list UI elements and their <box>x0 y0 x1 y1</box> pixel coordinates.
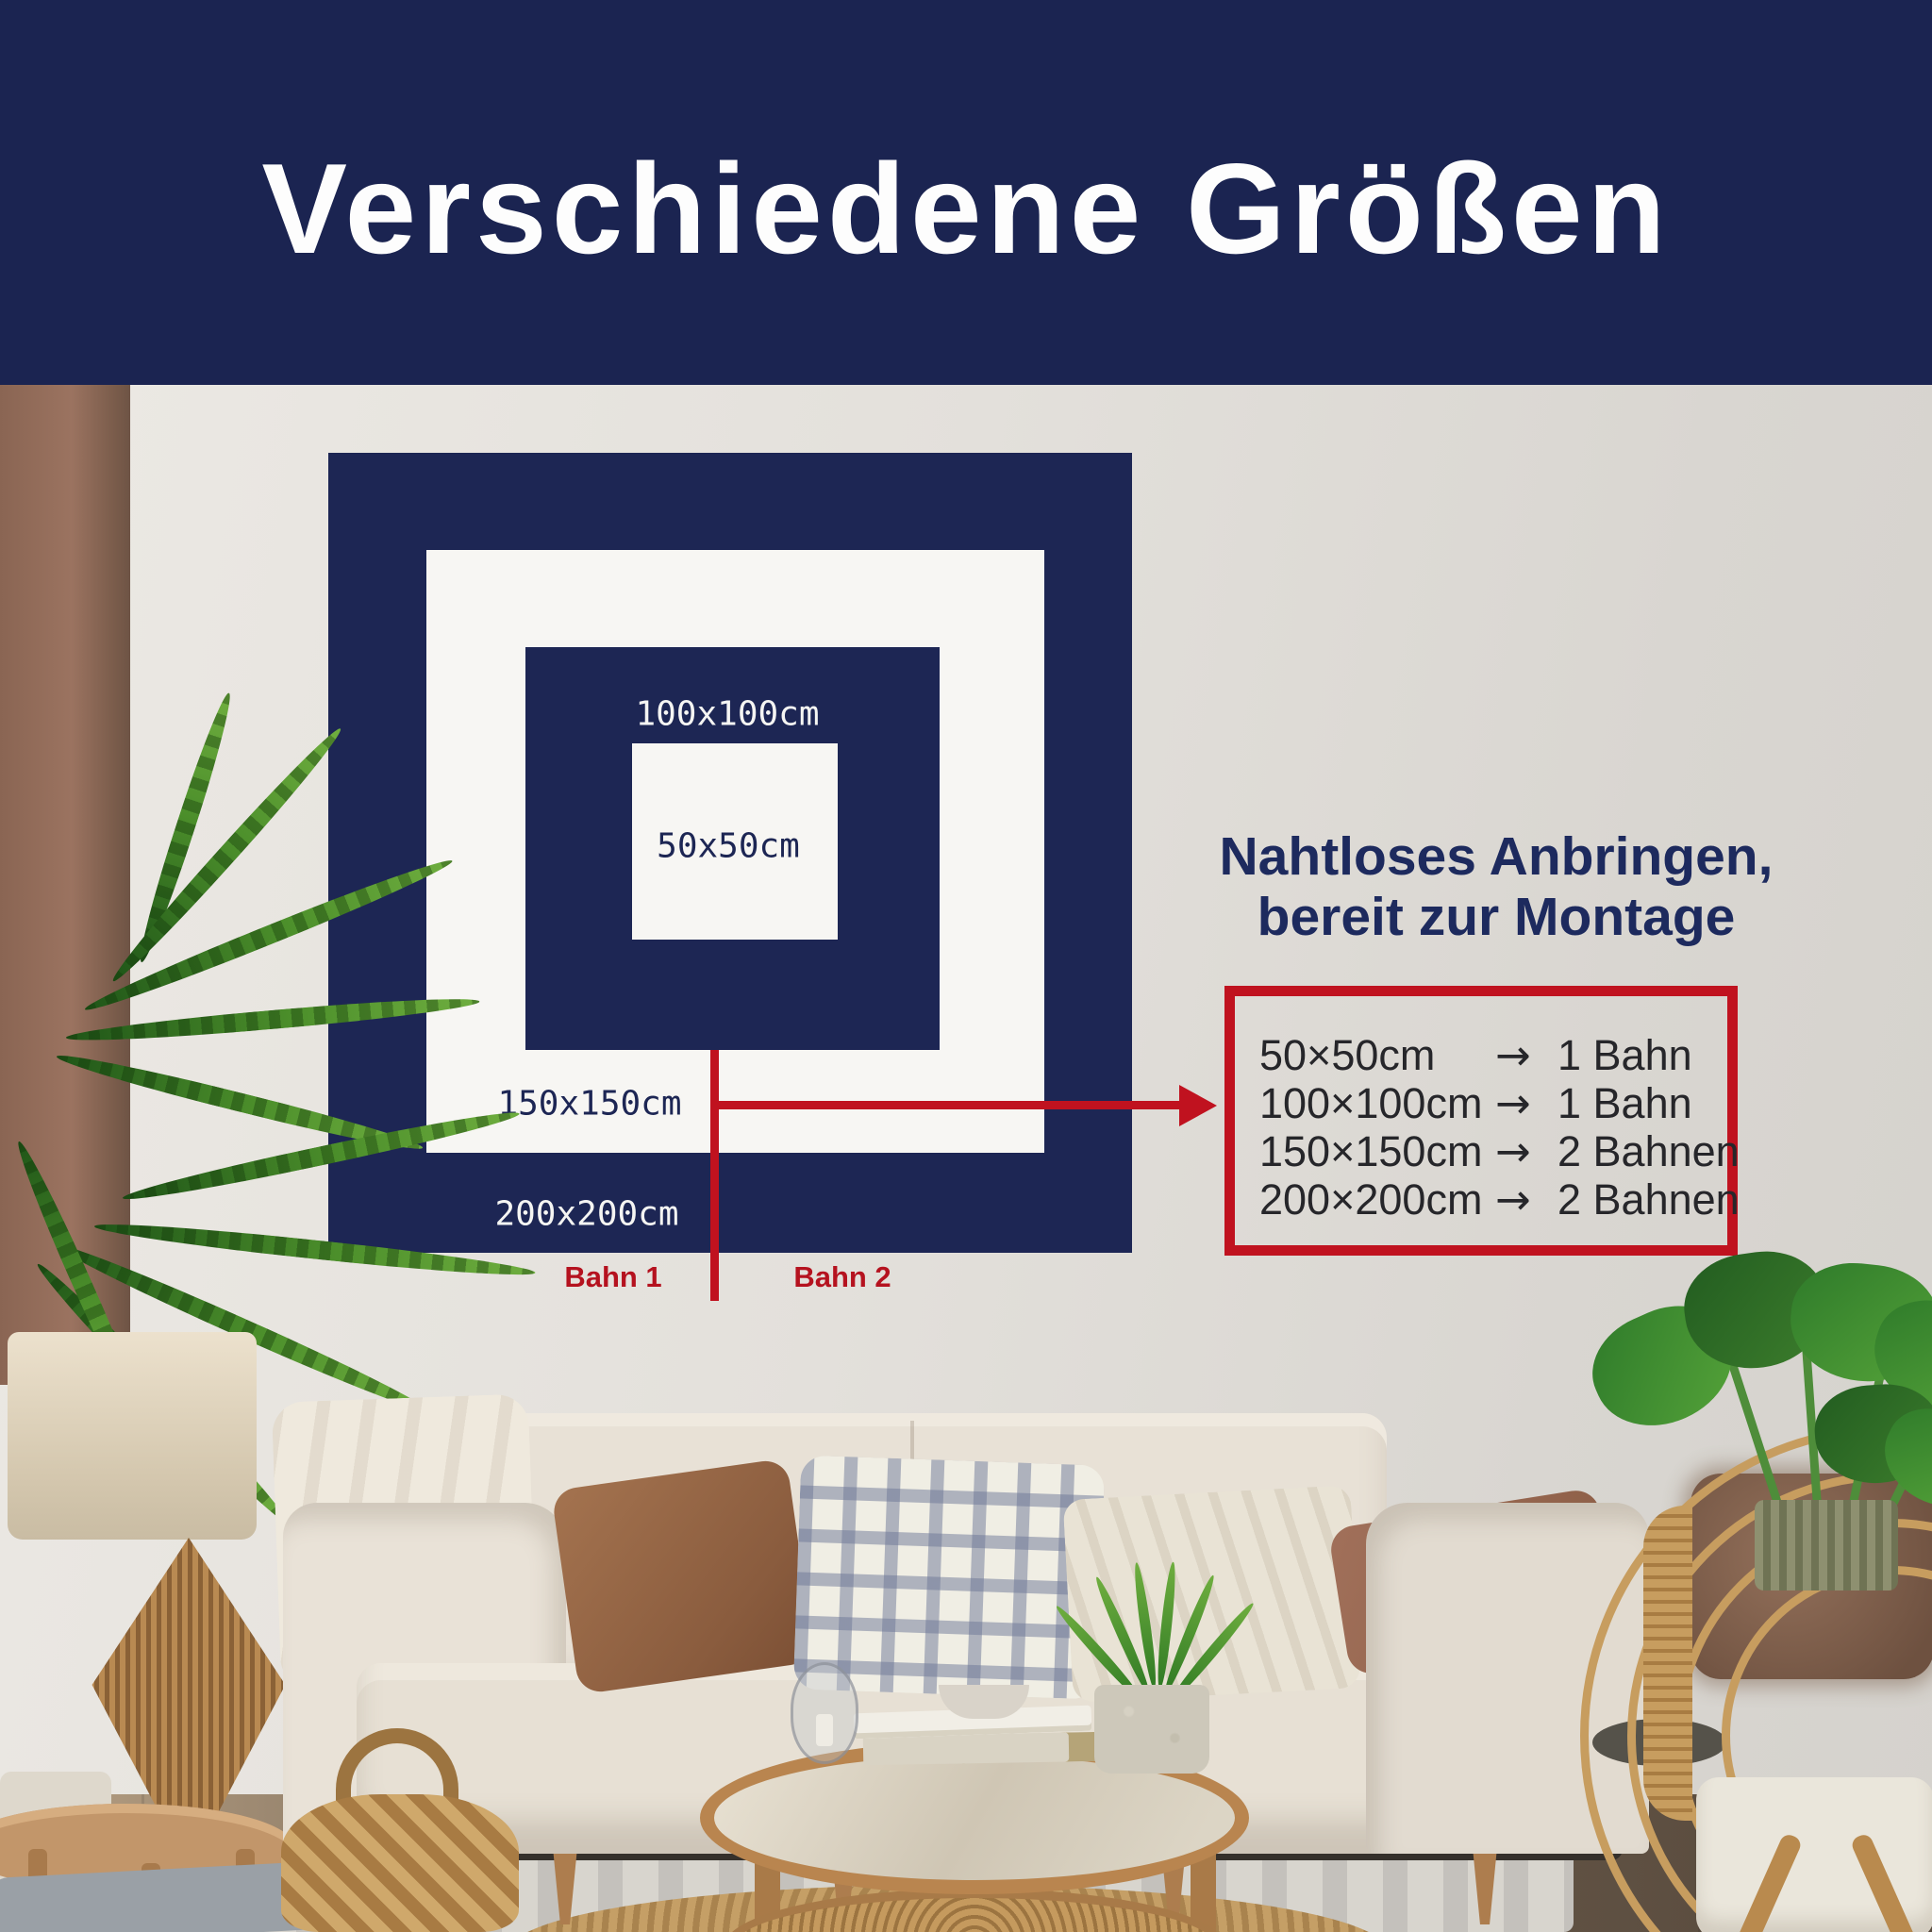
rattan-chair-edge <box>1643 1506 1692 1821</box>
panel-heading: Nahtloses Anbringen, bereit zur Montage <box>1206 826 1787 947</box>
lamp-shade <box>8 1332 257 1540</box>
row-size: 100×100cm <box>1259 1079 1495 1128</box>
title-banner: Verschiedene Größen <box>0 0 1932 385</box>
brown-velvet-pillow <box>551 1458 815 1695</box>
label-bahn-2: Bahn 2 <box>793 1260 891 1294</box>
label-size-50: 50x50cm <box>657 827 800 866</box>
arrow-icon: → <box>1495 1078 1557 1128</box>
bahn-divider-line <box>710 1050 719 1301</box>
table-row: 50×50cm → 1 Bahn <box>1259 1030 1727 1078</box>
bahn-table: 50×50cm → 1 Bahn 100×100cm → 1 Bahn 150×… <box>1224 986 1738 1256</box>
table-row: 200×200cm → 2 Bahnen <box>1259 1174 1727 1223</box>
label-size-150: 150x150cm <box>497 1085 681 1124</box>
panel-heading-line2: bereit zur Montage <box>1206 887 1787 947</box>
label-bahn-1: Bahn 1 <box>564 1260 661 1294</box>
arrow-icon: → <box>1495 1174 1557 1224</box>
page-title: Verschiedene Größen <box>261 103 1670 282</box>
arrow-shaft <box>715 1101 1181 1109</box>
row-size: 200×200cm <box>1259 1175 1495 1224</box>
row-size: 50×50cm <box>1259 1031 1495 1080</box>
row-bahn: 1 Bahn <box>1557 1031 1727 1080</box>
monstera-pot <box>1755 1500 1898 1591</box>
woven-basket <box>281 1794 519 1932</box>
arrow-icon: → <box>1495 1030 1557 1080</box>
panel-heading-line1: Nahtloses Anbringen, <box>1206 826 1787 887</box>
gingham-pillow <box>793 1455 1105 1699</box>
candle-holder <box>791 1662 858 1764</box>
plant-pot <box>1094 1685 1209 1774</box>
label-size-100: 100x100cm <box>635 695 819 734</box>
row-size: 150×150cm <box>1259 1127 1495 1176</box>
candle <box>816 1714 833 1746</box>
label-size-200: 200x200cm <box>494 1195 678 1234</box>
table-row: 150×150cm → 2 Bahnen <box>1259 1126 1727 1174</box>
product-infographic: 100x100cm 50x50cm 150x150cm 200x200cm Ba… <box>0 0 1932 1932</box>
table-row: 100×100cm → 1 Bahn <box>1259 1078 1727 1126</box>
row-bahn: 1 Bahn <box>1557 1079 1727 1128</box>
row-bahn: 2 Bahnen <box>1557 1127 1740 1176</box>
row-bahn: 2 Bahnen <box>1557 1175 1740 1224</box>
arrow-right-icon <box>1179 1085 1217 1126</box>
arrow-icon: → <box>1495 1126 1557 1176</box>
